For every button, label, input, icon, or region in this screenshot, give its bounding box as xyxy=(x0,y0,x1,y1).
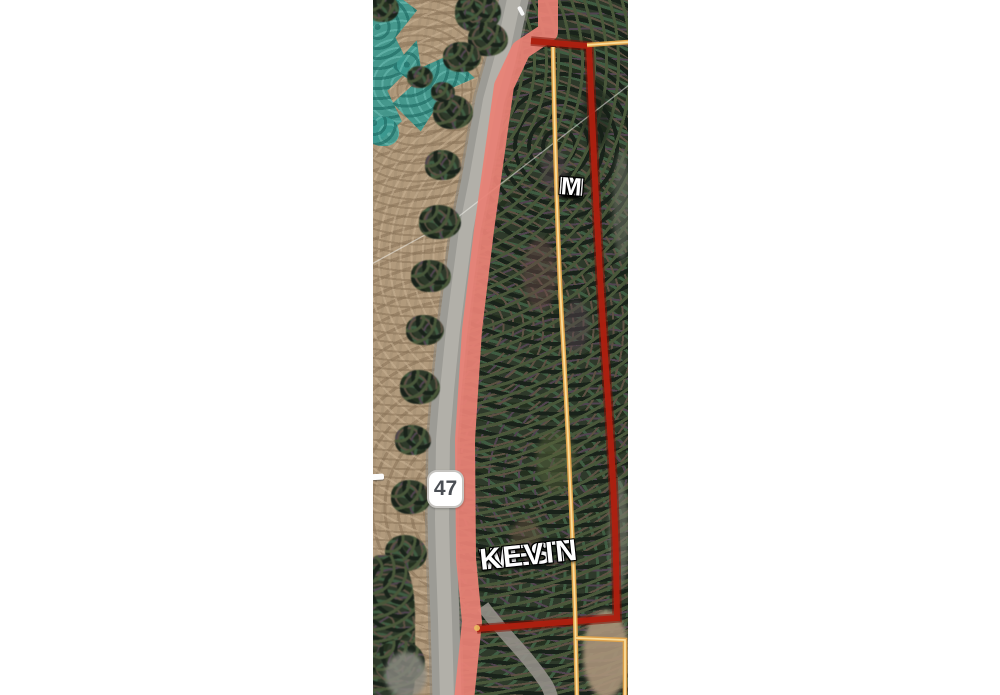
road-highlight-overlay[interactable] xyxy=(464,0,548,695)
left-margin xyxy=(0,0,373,695)
right-margin xyxy=(628,0,1000,695)
overlay-layer xyxy=(373,0,628,695)
map-viewport[interactable]: 47 W E S T K E V IN M WEST KEVIN xyxy=(373,0,628,695)
clipped-road-stub xyxy=(373,474,384,481)
parcel-line-southeast[interactable] xyxy=(576,638,625,695)
screenshot-root: 47 W E S T K E V IN M WEST KEVIN xyxy=(0,0,1000,695)
route-47-shield-label: 47 xyxy=(434,477,457,501)
parcel-vertex-marker xyxy=(474,625,480,631)
parcel-line-southeast-core xyxy=(576,638,625,695)
route-47-shield: 47 xyxy=(427,470,464,508)
label-letter: M xyxy=(560,171,584,204)
